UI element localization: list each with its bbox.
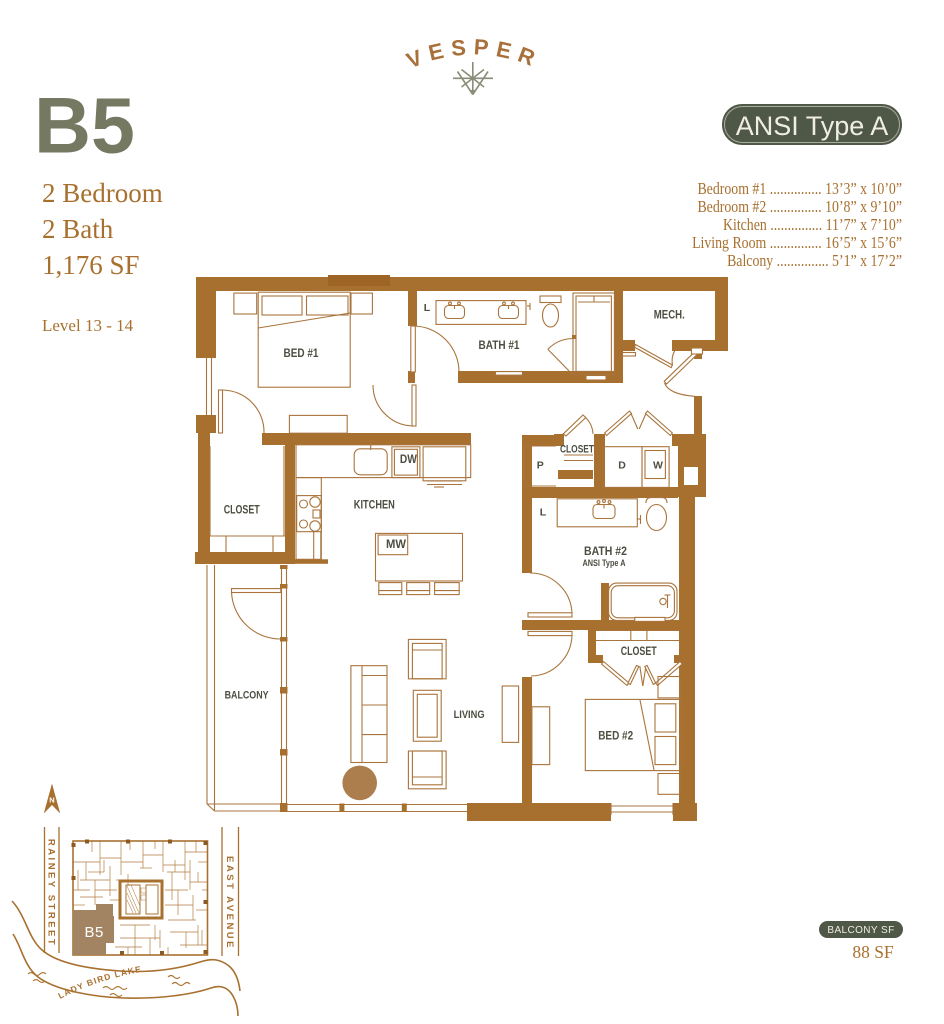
svg-text:B5: B5 (85, 924, 104, 941)
svg-text:VESPER: VESPER (403, 34, 545, 73)
svg-text:D: D (618, 459, 626, 471)
svg-text:L: L (540, 506, 547, 518)
svg-text:ANSI Type A: ANSI Type A (736, 111, 889, 141)
svg-text:2 Bath: 2 Bath (42, 214, 114, 244)
svg-text:88 SF: 88 SF (852, 942, 894, 962)
svg-text:Kitchen ............... 11’7”: Kitchen ............... 11’7” x 7’10” (723, 216, 902, 234)
svg-text:Level 13 - 14: Level 13 - 14 (42, 316, 134, 335)
svg-text:LIVING: LIVING (454, 709, 485, 721)
svg-text:CLOSET: CLOSET (621, 646, 657, 658)
svg-text:KITCHEN: KITCHEN (354, 500, 395, 512)
svg-text:RAINEY STREET: RAINEY STREET (45, 839, 56, 947)
svg-text:Bedroom #2 ............... 10’: Bedroom #2 ............... 10’8” x 9’10” (697, 198, 902, 216)
svg-text:B5: B5 (34, 81, 135, 170)
svg-text:Bedroom #1 ............... 13’: Bedroom #1 ............... 13’3” x 10’0” (697, 180, 902, 198)
svg-text:2 Bedroom: 2 Bedroom (42, 178, 163, 208)
svg-text:MECH.: MECH. (654, 310, 685, 322)
svg-text:BALCONY SF: BALCONY SF (827, 925, 894, 936)
svg-text:MW: MW (386, 537, 407, 551)
svg-text:BATH #2: BATH #2 (584, 546, 627, 558)
svg-text:N: N (49, 796, 54, 805)
svg-text:P: P (537, 459, 544, 471)
svg-text:BALCONY: BALCONY (225, 690, 270, 702)
svg-text:BATH #1: BATH #1 (479, 340, 521, 352)
svg-text:W: W (653, 459, 663, 471)
svg-text:1,176 SF: 1,176 SF (42, 250, 140, 280)
svg-text:ANSI Type A: ANSI Type A (583, 558, 626, 568)
svg-text:Living Room ............... 16: Living Room ............... 16’5” x 15’6… (692, 234, 902, 252)
svg-text:EAST AVENUE: EAST AVENUE (224, 856, 235, 950)
svg-text:DW: DW (400, 452, 418, 466)
svg-text:CLOSET: CLOSET (560, 443, 594, 455)
svg-text:BED #2: BED #2 (598, 731, 633, 743)
svg-text:L: L (424, 302, 431, 314)
svg-text:BED #1: BED #1 (284, 348, 320, 360)
svg-text:Balcony ............... 5’1” x: Balcony ............... 5’1” x 17’2” (727, 252, 902, 270)
svg-text:CLOSET: CLOSET (224, 505, 260, 517)
